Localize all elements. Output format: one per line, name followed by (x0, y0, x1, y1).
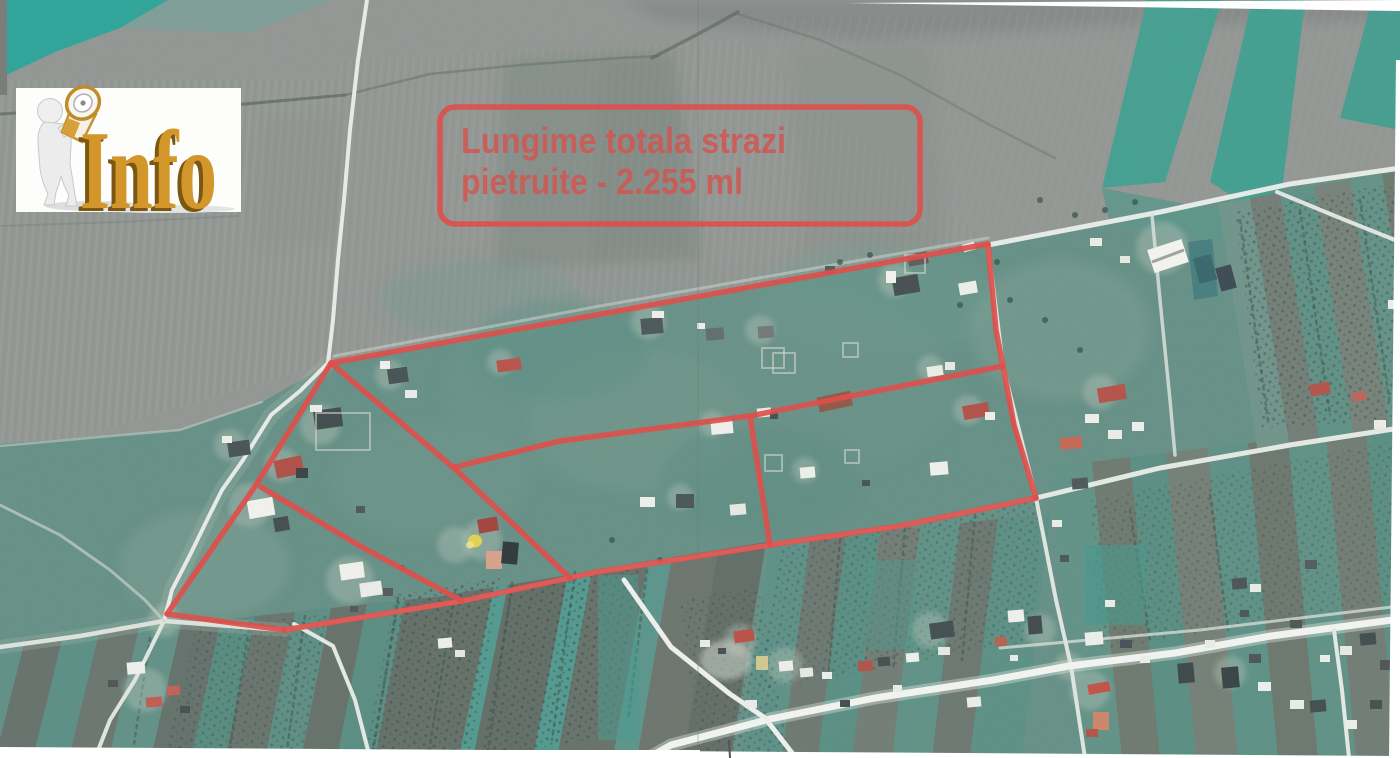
svg-text:Info: Info (80, 109, 217, 233)
svg-text:Lungime totala strazi: Lungime totala strazi (461, 120, 786, 161)
svg-text:pietruite - 2.255 ml: pietruite - 2.255 ml (461, 161, 743, 202)
